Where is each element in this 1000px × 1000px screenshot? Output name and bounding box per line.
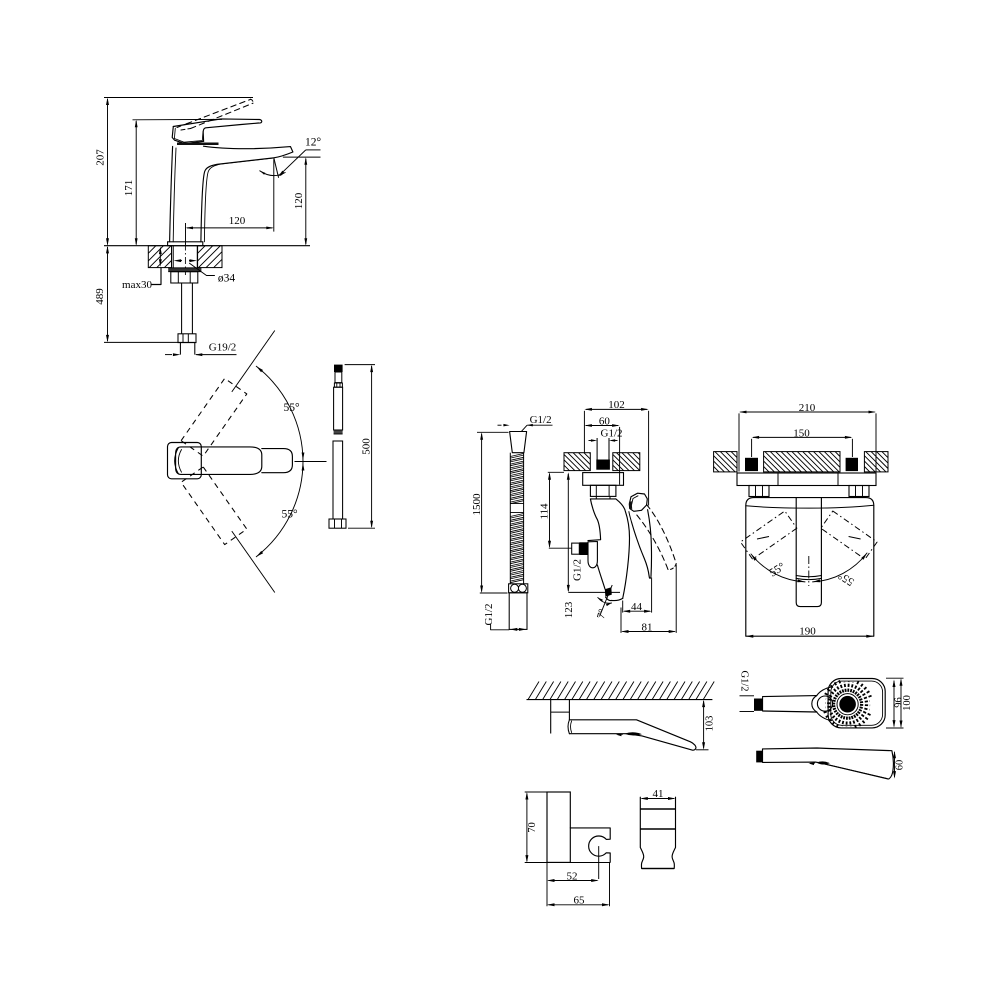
svg-text:1500: 1500	[471, 493, 483, 516]
svg-text:102: 102	[608, 399, 625, 411]
svg-text:G1/2: G1/2	[530, 414, 552, 426]
svg-text:12°: 12°	[305, 136, 322, 148]
svg-text:489: 489	[94, 288, 106, 305]
svg-text:G1/2: G1/2	[483, 604, 495, 626]
svg-text:103: 103	[704, 716, 715, 732]
svg-text:44: 44	[631, 601, 643, 613]
svg-text:210: 210	[799, 402, 816, 414]
svg-text:55°: 55°	[281, 508, 298, 520]
svg-text:60: 60	[599, 415, 611, 427]
svg-text:500: 500	[360, 438, 372, 455]
svg-text:ø34: ø34	[218, 272, 236, 284]
svg-text:81: 81	[642, 621, 653, 633]
svg-text:65: 65	[574, 895, 586, 907]
svg-text:190: 190	[799, 625, 816, 637]
svg-text:G1/2: G1/2	[572, 559, 584, 581]
svg-text:60: 60	[895, 760, 906, 771]
svg-text:120: 120	[229, 215, 246, 227]
svg-text:G19/2: G19/2	[209, 342, 237, 354]
svg-text:G1/2: G1/2	[739, 671, 750, 692]
svg-text:55°: 55°	[283, 402, 300, 414]
svg-text:100: 100	[902, 695, 913, 711]
svg-text:123: 123	[563, 601, 575, 618]
svg-text:207: 207	[95, 149, 107, 166]
svg-text:120: 120	[293, 192, 305, 209]
svg-text:70: 70	[527, 822, 538, 833]
svg-text:max30: max30	[122, 279, 152, 291]
svg-text:G1/2: G1/2	[601, 427, 623, 439]
svg-text:52: 52	[567, 870, 578, 882]
svg-text:114: 114	[539, 503, 551, 520]
svg-text:171: 171	[123, 180, 135, 197]
svg-text:150: 150	[793, 427, 810, 439]
svg-text:41: 41	[653, 788, 664, 800]
